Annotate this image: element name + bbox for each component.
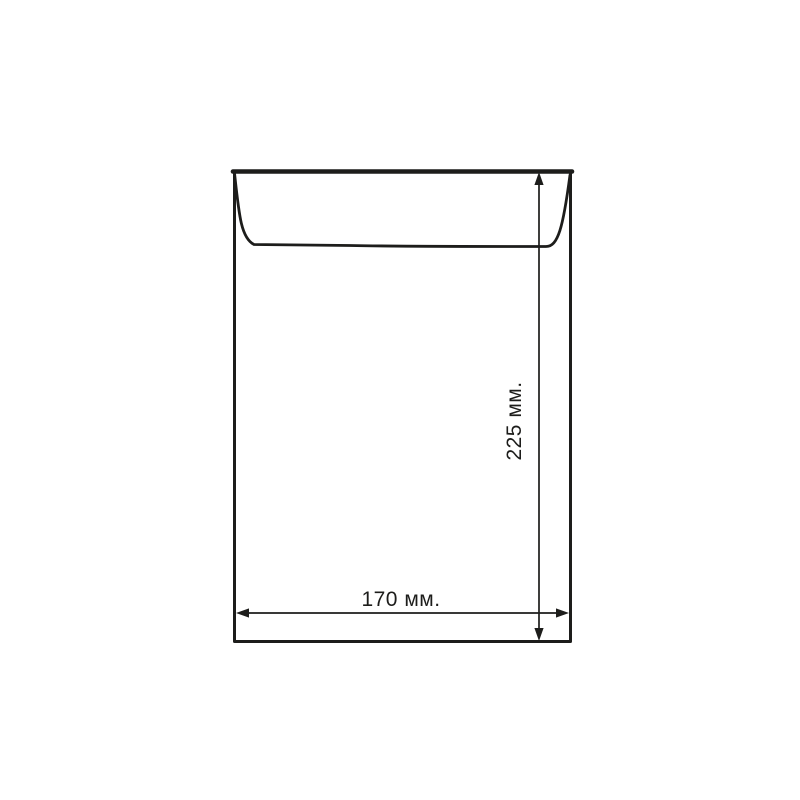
envelope-dimension-diagram: 225 мм. 170 мм. xyxy=(0,0,800,800)
width-dimension-label: 170 мм. xyxy=(361,588,440,611)
product-dimension-image: 225 мм. 170 мм. xyxy=(0,0,800,800)
height-dimension-label: 225 мм. xyxy=(503,381,526,460)
